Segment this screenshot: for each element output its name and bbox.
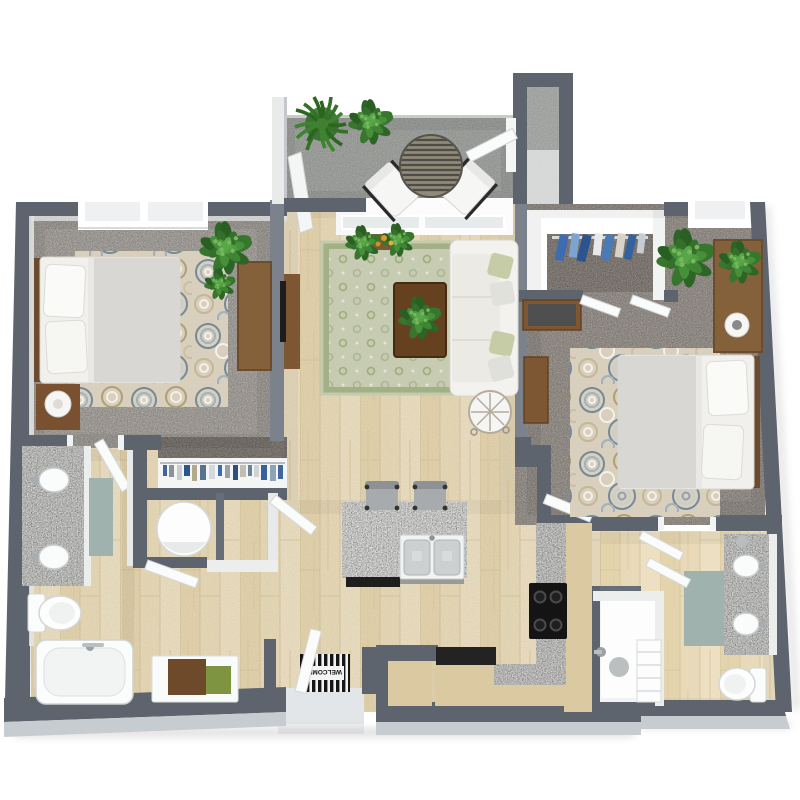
svg-text:WELCOME: WELCOME <box>307 668 342 675</box>
